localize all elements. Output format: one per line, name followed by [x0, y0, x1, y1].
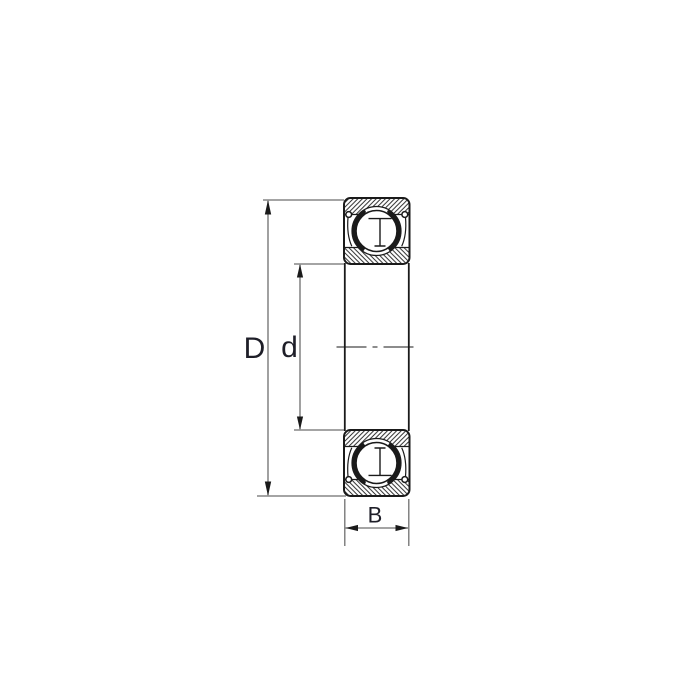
label-width: B [368, 503, 383, 528]
shield-right [402, 217, 406, 246]
bearing-section-upper [344, 198, 410, 264]
label-outer-diameter: D [244, 332, 266, 365]
shield-anchor-right [402, 212, 408, 218]
arrow-right-icon [396, 525, 409, 531]
shield-anchor-left [346, 212, 352, 218]
bearing-section-lower [344, 430, 410, 496]
arrow-left-icon [346, 525, 359, 531]
dimension-bore-diameter: d [281, 264, 344, 430]
label-bore-diameter: d [281, 331, 298, 364]
shield-left [348, 217, 352, 246]
bearing-cross-section-drawing: D d B [0, 0, 700, 700]
arrow-up-icon [265, 200, 271, 215]
bearing-diagram: D d B [0, 0, 700, 700]
arrow-down-icon [297, 417, 303, 431]
arrow-up-icon [297, 264, 303, 278]
arrow-down-icon [265, 482, 271, 497]
dimension-width: B [345, 499, 409, 546]
